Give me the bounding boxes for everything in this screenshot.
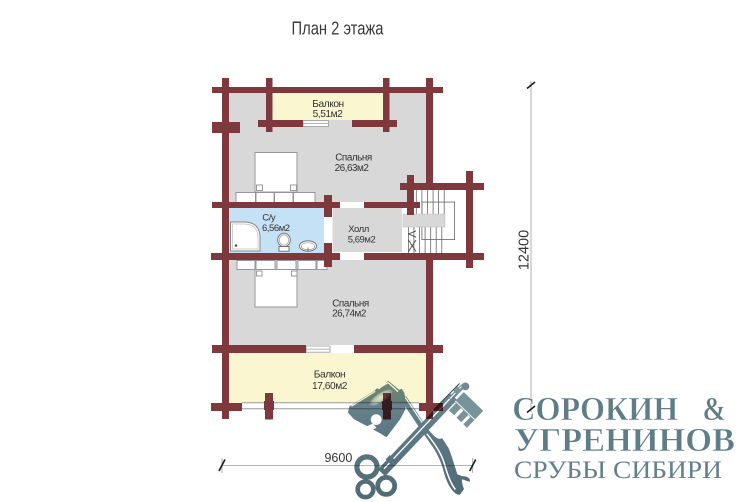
svg-text:17,60м2: 17,60м2 xyxy=(312,381,348,392)
svg-text:26,63м2: 26,63м2 xyxy=(335,163,369,174)
svg-text:6,56м2: 6,56м2 xyxy=(262,223,290,234)
svg-text:26,74м2: 26,74м2 xyxy=(332,309,366,320)
svg-text:С/у: С/у xyxy=(262,212,276,223)
svg-text:План 2 этажа: План 2 этажа xyxy=(292,18,385,39)
svg-text:УГРЕНИНОВ: УГРЕНИНОВ xyxy=(514,422,735,459)
svg-text:5,51м2: 5,51м2 xyxy=(313,109,344,120)
svg-text:СРУБЫ СИБИРИ: СРУБЫ СИБИРИ xyxy=(514,457,722,484)
svg-text:9600: 9600 xyxy=(324,451,352,465)
svg-text:Холл: Холл xyxy=(348,224,369,235)
svg-text:Спальня: Спальня xyxy=(335,153,372,164)
svg-text:5,69м2: 5,69м2 xyxy=(348,235,376,246)
svg-text:12400: 12400 xyxy=(517,230,533,270)
svg-text:Балкон: Балкон xyxy=(314,370,345,381)
